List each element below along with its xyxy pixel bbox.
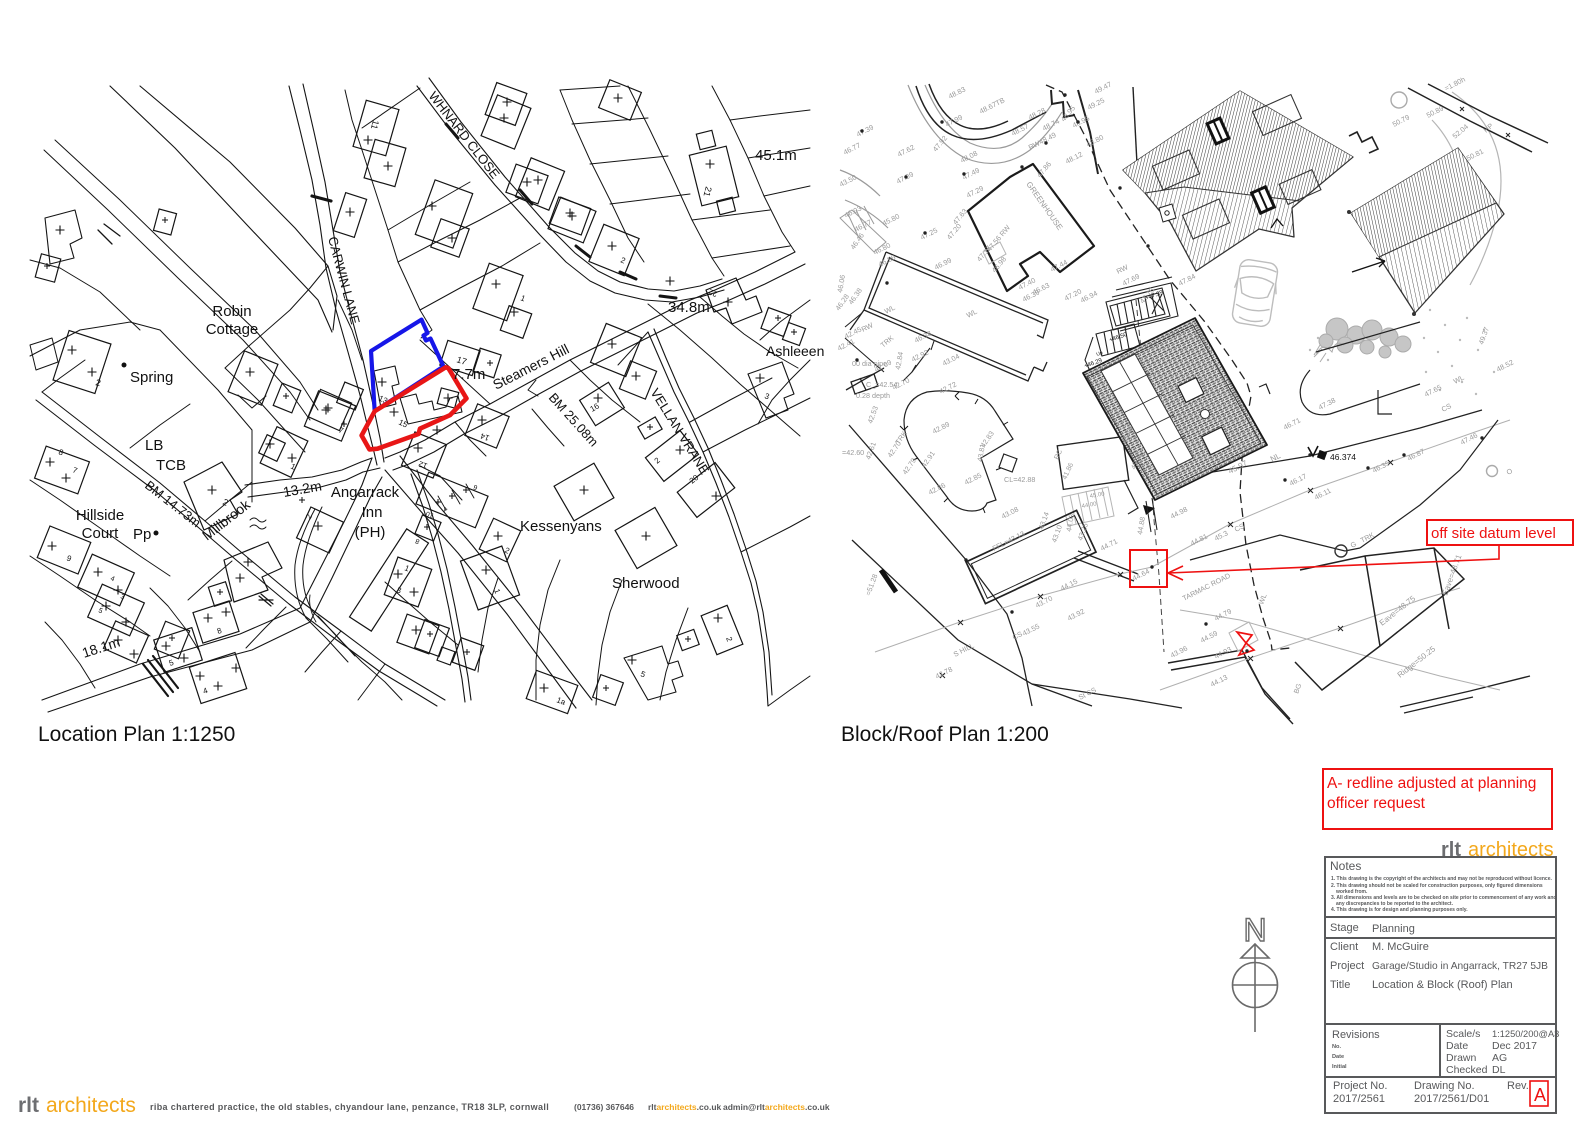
svg-text:45.1m: 45.1m bbox=[755, 147, 797, 164]
svg-text:(01736) 367646: (01736) 367646 bbox=[574, 1102, 634, 1112]
svg-text:=42.60: =42.60 bbox=[842, 448, 864, 457]
svg-text:rltarchitects.co.uk: rltarchitects.co.uk bbox=[648, 1102, 722, 1112]
svg-text:Date: Date bbox=[1332, 1054, 1344, 1060]
svg-text:Sherwood: Sherwood bbox=[612, 575, 680, 592]
svg-text:Garage/Studio in Angarrack, TR: Garage/Studio in Angarrack, TR27 5JB bbox=[1372, 961, 1548, 972]
svg-text:1. This drawing is the copyrig: 1. This drawing is the copyright of the … bbox=[1331, 876, 1552, 882]
svg-text:Cottage: Cottage bbox=[206, 321, 259, 338]
svg-text:46.374: 46.374 bbox=[1330, 452, 1356, 462]
svg-text:Revisions: Revisions bbox=[1332, 1029, 1380, 1041]
svg-text:(PH): (PH) bbox=[355, 524, 386, 541]
svg-text:Drawing No.: Drawing No. bbox=[1414, 1080, 1475, 1092]
svg-text:2017/2561/D01: 2017/2561/D01 bbox=[1414, 1093, 1489, 1105]
svg-text:7.7m: 7.7m bbox=[452, 366, 485, 383]
svg-text:1:1250/200@A3: 1:1250/200@A3 bbox=[1492, 1029, 1559, 1039]
svg-text:34.8m: 34.8m bbox=[668, 299, 710, 316]
svg-text:Kessenyans: Kessenyans bbox=[520, 518, 602, 535]
svg-text:Pp: Pp bbox=[133, 526, 151, 543]
svg-text:Location & Block (Roof) Plan: Location & Block (Roof) Plan bbox=[1372, 979, 1513, 991]
svg-text:TCB: TCB bbox=[156, 457, 186, 474]
svg-text:Angarrack: Angarrack bbox=[331, 484, 400, 501]
svg-text:Project No.: Project No. bbox=[1333, 1080, 1387, 1092]
svg-text:LB: LB bbox=[145, 437, 163, 454]
svg-text:Checked: Checked bbox=[1446, 1064, 1488, 1076]
svg-text:Client: Client bbox=[1330, 941, 1358, 953]
svg-text:Date: Date bbox=[1446, 1040, 1468, 1052]
svg-text:Notes: Notes bbox=[1330, 859, 1361, 873]
svg-text:Dec 2017: Dec 2017 bbox=[1492, 1040, 1537, 1052]
svg-text:C_=42.54: C_=42.54 bbox=[866, 380, 897, 389]
svg-text:0.28 depth: 0.28 depth bbox=[856, 391, 890, 400]
svg-text:Location Plan 1:1250: Location Plan 1:1250 bbox=[38, 723, 235, 746]
svg-text:riba chartered practice, the: riba chartered practice, the old stables… bbox=[150, 1102, 549, 1112]
svg-text:No.: No. bbox=[1332, 1044, 1341, 1050]
svg-text:Planning: Planning bbox=[1372, 923, 1415, 935]
svg-text:A- redline adjusted at plannin: A- redline adjusted at planning bbox=[1327, 775, 1536, 792]
svg-text:AG: AG bbox=[1492, 1052, 1507, 1064]
svg-text:M. McGuire: M. McGuire bbox=[1372, 941, 1429, 953]
svg-text:officer request: officer request bbox=[1327, 795, 1426, 812]
svg-text:DL: DL bbox=[1492, 1064, 1506, 1076]
svg-text:Robin: Robin bbox=[212, 303, 251, 320]
svg-text:Spring: Spring bbox=[130, 369, 173, 386]
svg-text:2017/2561: 2017/2561 bbox=[1333, 1093, 1385, 1105]
svg-text:Court: Court bbox=[82, 525, 120, 542]
svg-text:N: N bbox=[1243, 912, 1266, 948]
svg-text:admin@rltarchitects.co.uk: admin@rltarchitects.co.uk bbox=[723, 1102, 830, 1112]
svg-text:Rev.: Rev. bbox=[1507, 1080, 1529, 1092]
svg-text:Hillside: Hillside bbox=[76, 507, 124, 524]
svg-text:Ashleeen: Ashleeen bbox=[766, 343, 824, 359]
svg-text:Project: Project bbox=[1330, 960, 1364, 972]
svg-text:A: A bbox=[1534, 1085, 1546, 1105]
svg-text:Initial: Initial bbox=[1332, 1064, 1347, 1070]
svg-text:Scale/s: Scale/s bbox=[1446, 1028, 1480, 1040]
svg-text:4. This drawing is for design: 4. This drawing is for design and planni… bbox=[1331, 907, 1468, 913]
svg-text:Stage: Stage bbox=[1330, 922, 1359, 934]
svg-text:off site datum level: off site datum level bbox=[1431, 525, 1556, 542]
svg-text:Title: Title bbox=[1330, 979, 1350, 991]
svg-text:Block/Roof Plan 1:200: Block/Roof Plan 1:200 bbox=[841, 723, 1049, 746]
svg-text:architects: architects bbox=[46, 1094, 136, 1117]
svg-text:CL=42.88: CL=42.88 bbox=[1004, 475, 1035, 484]
svg-text:Inn: Inn bbox=[362, 504, 383, 521]
svg-text:rlt: rlt bbox=[18, 1094, 39, 1117]
svg-text:Drawn: Drawn bbox=[1446, 1052, 1477, 1064]
